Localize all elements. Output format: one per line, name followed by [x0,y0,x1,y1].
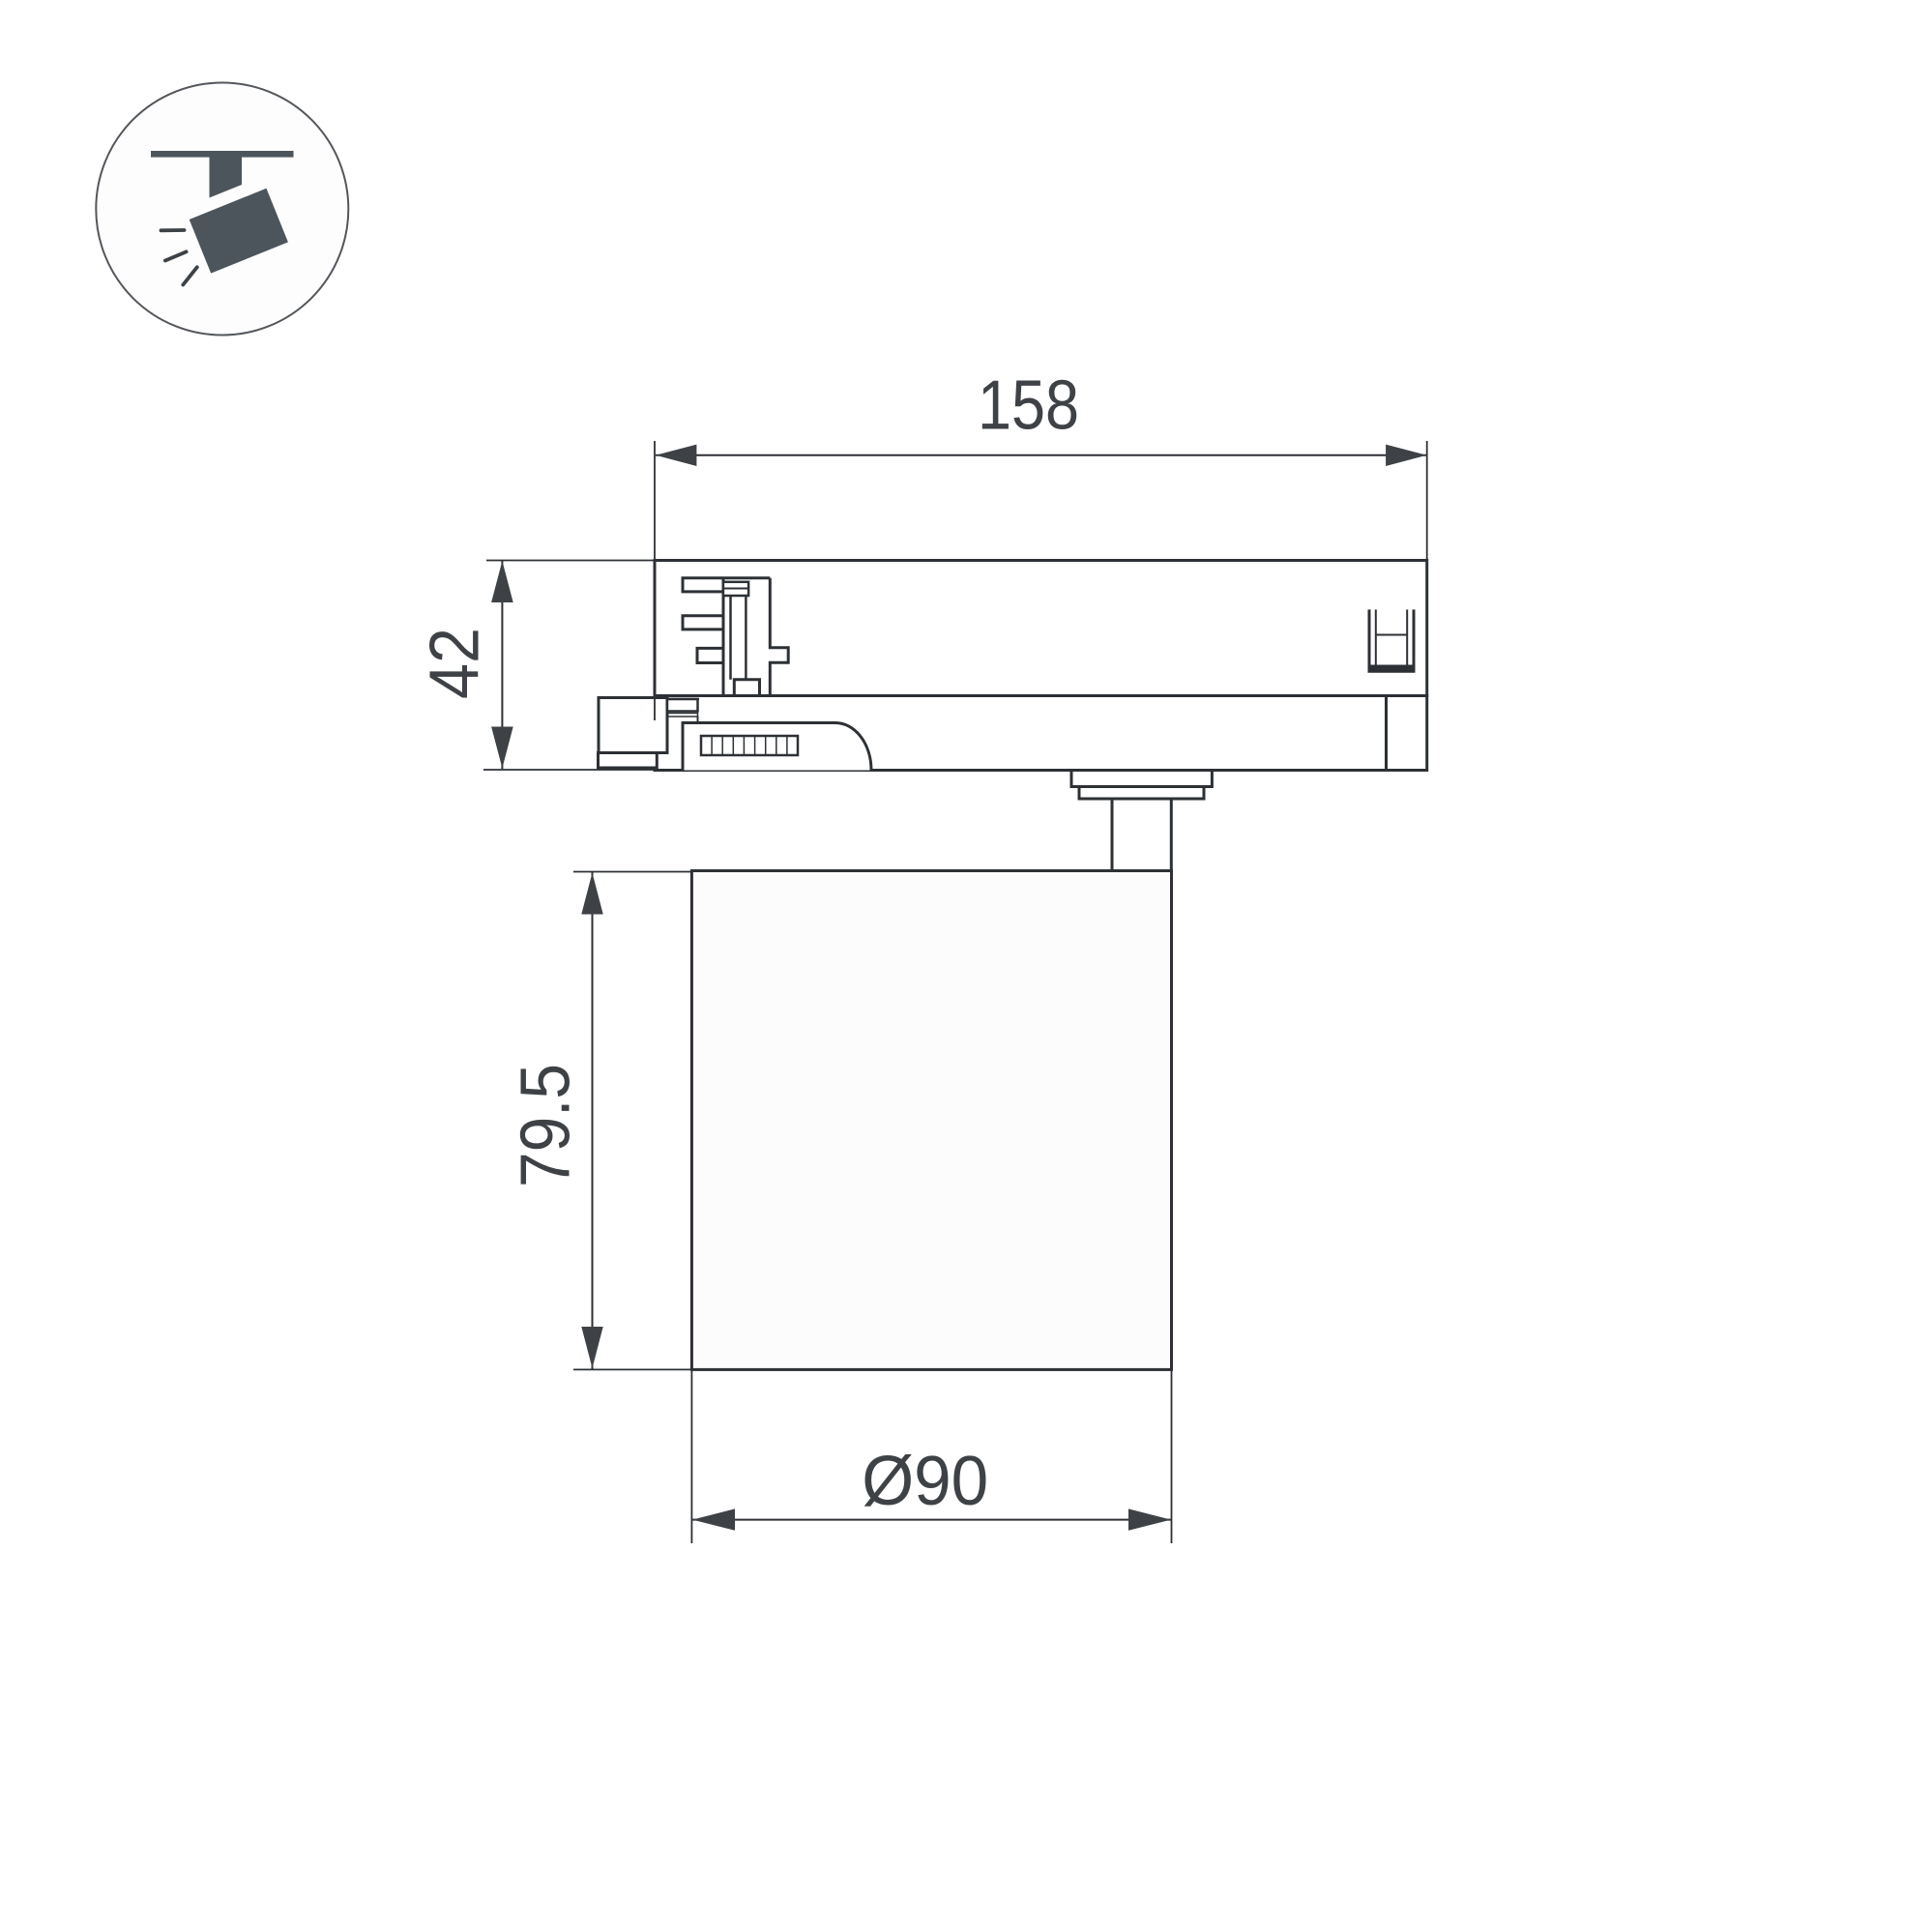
svg-text:79.5: 79.5 [508,1064,585,1187]
svg-text:Ø90: Ø90 [862,1443,988,1520]
svg-text:158: 158 [978,367,1079,445]
svg-text:42: 42 [417,628,494,699]
